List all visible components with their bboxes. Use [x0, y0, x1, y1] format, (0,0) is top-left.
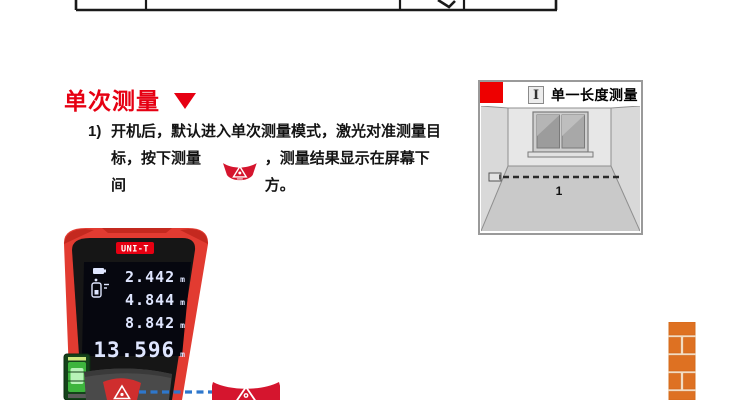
- window-illustration: [528, 112, 593, 157]
- brand-logo-text: UNI-T: [121, 245, 149, 255]
- distance-label: 1: [556, 184, 563, 198]
- screen-readings: 2.442 m 4.844 m 8.842 m 13.596 m: [88, 267, 185, 368]
- reading-row: 8.842 m: [88, 313, 185, 336]
- measure-button-icon-large: [212, 378, 280, 400]
- triangle-down-icon: [174, 93, 196, 109]
- step-text-line1: 开机后，默认进入单次测量模式，激光对准测量目: [111, 118, 441, 145]
- reading-row-primary: 13.596 m: [88, 337, 185, 368]
- reading-unit: m: [180, 342, 185, 368]
- reading-value: 4.844: [125, 290, 175, 311]
- length-mode-icon: I: [528, 86, 544, 104]
- room-illustration: 1: [481, 106, 640, 233]
- step-instructions: 1) 开机后，默认进入单次测量模式，激光对准测量目 标，按下测量间 ，测量结果显…: [88, 118, 458, 199]
- reading-value: 2.442: [125, 267, 175, 288]
- cropped-table-top: [0, 0, 600, 14]
- section-title: 单次测量: [64, 82, 160, 116]
- step-number: 1): [88, 118, 111, 145]
- reading-row: 2.442 m: [88, 267, 185, 290]
- reading-row: 4.844 m: [88, 290, 185, 313]
- diagram-header: I 单一长度测量: [528, 85, 638, 105]
- red-corner-marker: [480, 82, 503, 103]
- measurement-diagram-panel: I 单一长度测量 1: [478, 80, 643, 235]
- step-text-line2-pre: 标，按下测量间: [111, 145, 215, 199]
- reading-unit: m: [180, 315, 185, 336]
- laser-beam-line: [139, 388, 217, 396]
- diagram-title: 单一长度测量: [551, 85, 638, 105]
- manual-page: 单次测量 1) 开机后，默认进入单次测量模式，激光对准测量目 标，按下测量间 ，…: [0, 0, 750, 400]
- reading-unit: m: [180, 292, 185, 313]
- device-measure-button: [103, 378, 141, 400]
- section-heading: 单次测量: [64, 82, 196, 116]
- brick-wall-icon: [668, 322, 696, 400]
- measure-button-icon: [222, 160, 258, 184]
- step-text-line2-post: ，测量结果显示在屏幕下方。: [265, 145, 458, 199]
- check-tail-icon: [438, 0, 455, 7]
- reading-value: 8.842: [125, 313, 175, 334]
- reading-value: 13.596: [93, 337, 175, 363]
- reading-unit: m: [180, 269, 185, 290]
